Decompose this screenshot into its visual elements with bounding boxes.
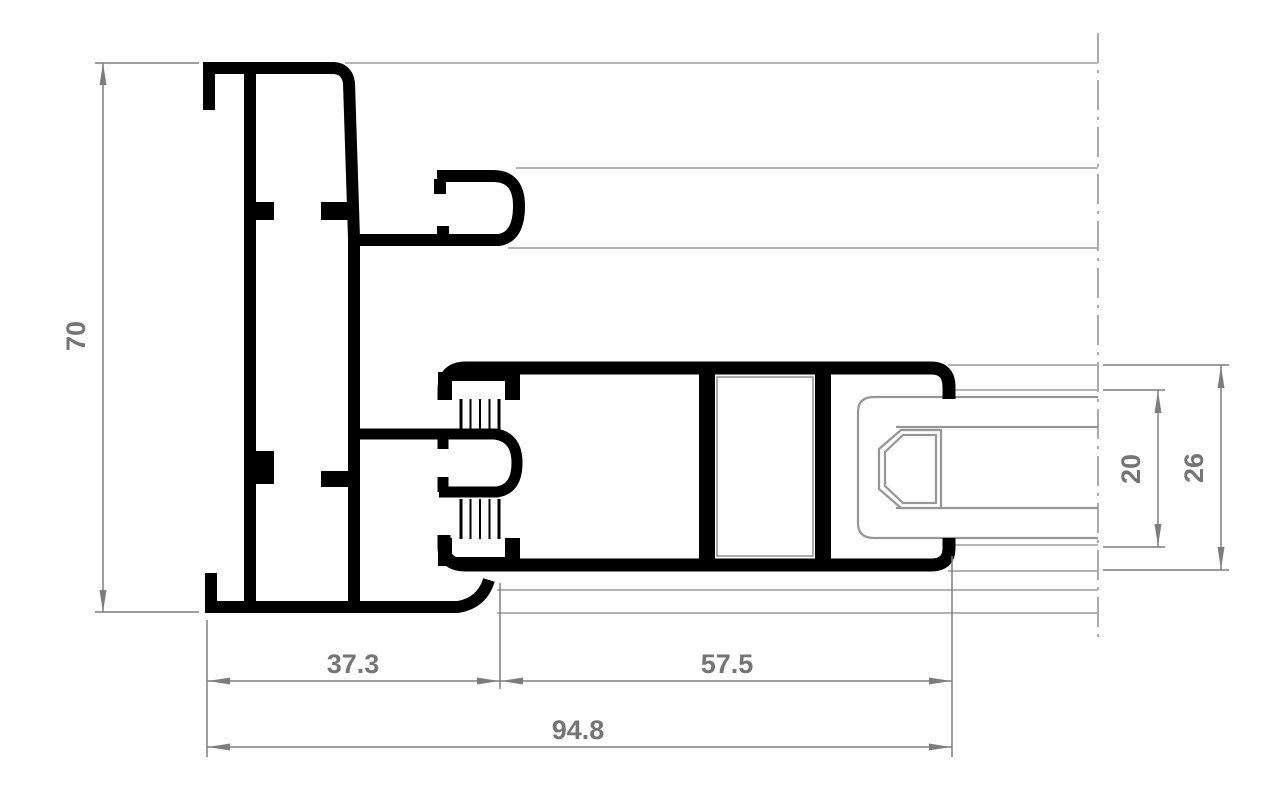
frame-shelf-lower-and-gasket-channel <box>354 434 517 492</box>
frame-shelf-upper-and-clip <box>354 176 519 240</box>
arrowhead-up <box>1218 366 1225 388</box>
gasket-head-bottom <box>438 538 520 566</box>
technical-drawing: 70 37.3 57.5 94.8 20 <box>0 0 1274 785</box>
screw-boss-tab-lower-left <box>255 451 274 484</box>
arrowhead-left <box>501 678 523 685</box>
screw-boss-tab-upper-right <box>321 202 349 220</box>
arrowhead-right <box>929 744 951 751</box>
glazing-unit <box>858 397 1098 538</box>
gasket-head-top <box>438 372 520 400</box>
screw-boss-tab-upper-left <box>255 202 274 220</box>
dimension-label-37-3: 37.3 <box>327 649 380 679</box>
arrowhead-right <box>929 678 951 685</box>
gasket-fin-hatch-bottom <box>461 499 499 539</box>
dimension-frame-height: 70 <box>61 63 199 612</box>
arrowhead-up <box>1155 391 1162 413</box>
thermal-break-left-wall <box>699 374 715 559</box>
arrowhead-left <box>208 744 230 751</box>
profile-section-canvas: 70 37.3 57.5 94.8 20 <box>0 0 1274 785</box>
arrowhead-down <box>1218 547 1225 569</box>
gasket-fin-hatch-top <box>461 399 499 430</box>
arrowhead-down <box>1155 524 1162 546</box>
screw-boss-tab-lower-right <box>321 471 349 487</box>
arrowhead-left <box>208 678 230 685</box>
thermal-break-right-wall <box>815 374 831 559</box>
dimension-overall-depth: 94.8 <box>207 715 952 751</box>
arrowhead-right <box>477 678 499 685</box>
arrowhead-up <box>100 63 107 85</box>
outer-frame-profile <box>203 68 519 607</box>
dimension-label-57-5: 57.5 <box>701 649 754 679</box>
dimension-label-20: 20 <box>1116 454 1146 484</box>
dimension-label-94-8: 94.8 <box>552 715 605 745</box>
thermal-break-insert <box>717 377 813 556</box>
dimension-label-26: 26 <box>1179 453 1209 483</box>
arrowhead-down <box>100 590 107 612</box>
spacer-bar-outer <box>879 430 941 508</box>
dimension-label-70: 70 <box>61 321 91 351</box>
dimension-glazing-thickness: 20 <box>1103 390 1165 547</box>
